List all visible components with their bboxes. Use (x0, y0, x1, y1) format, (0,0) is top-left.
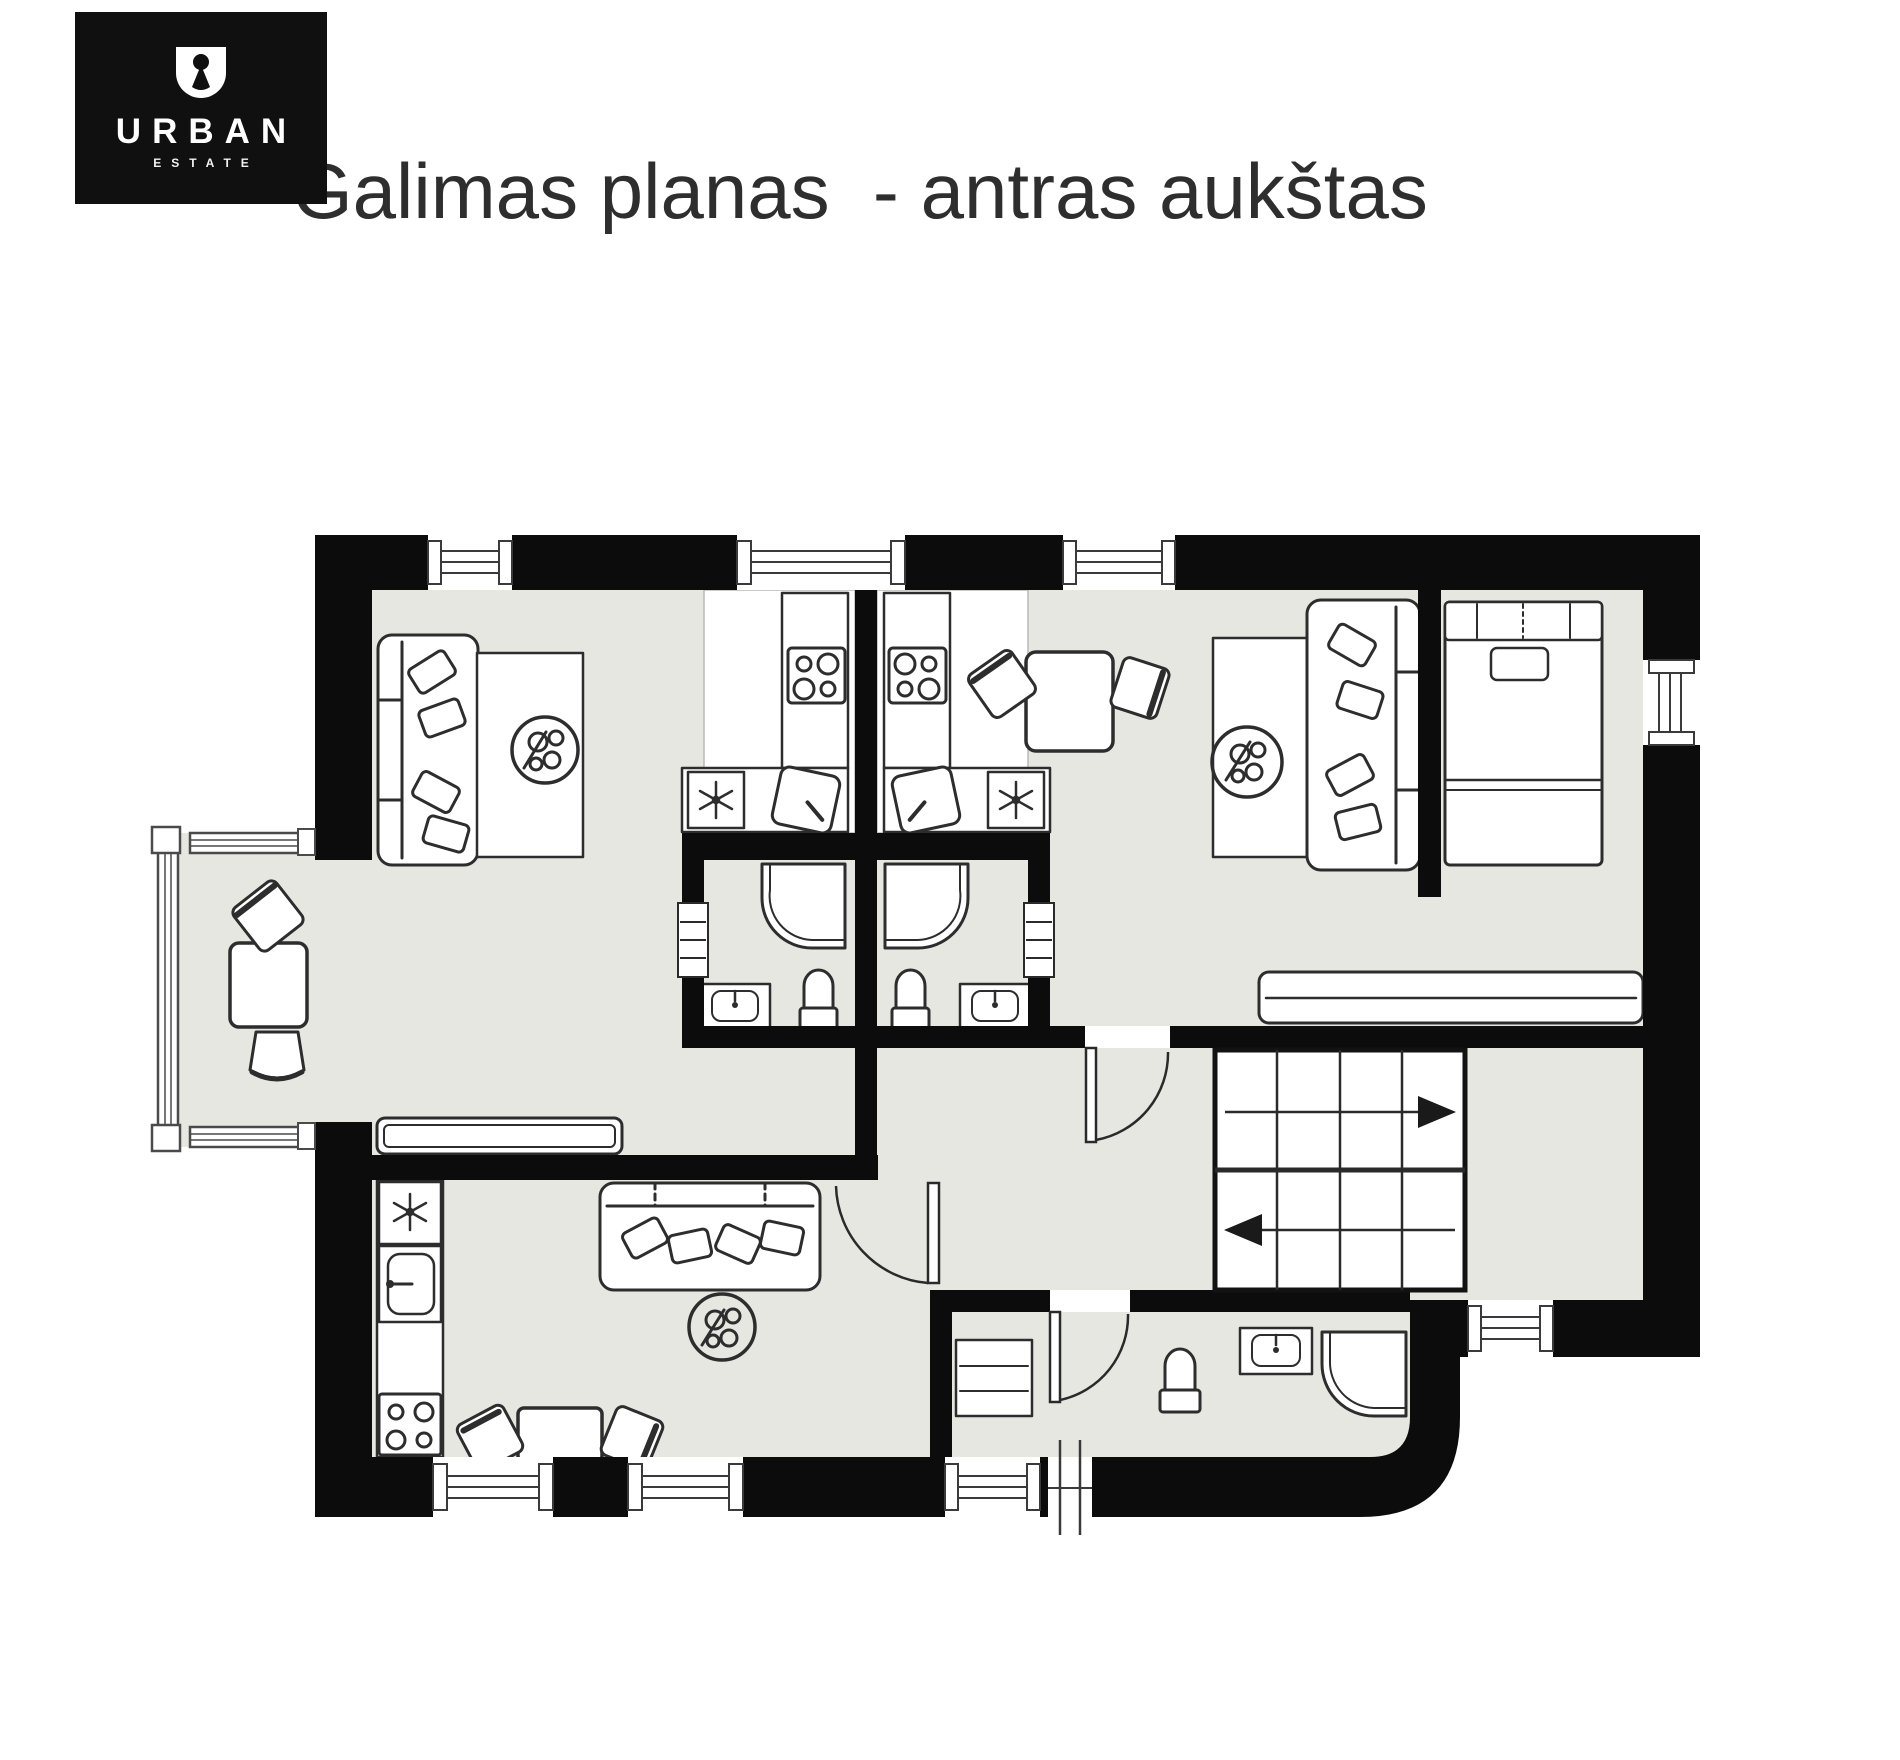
logo-brand: URBAN (105, 114, 297, 149)
sofa-icon (378, 635, 478, 865)
bathroom-2-door (1024, 903, 1054, 977)
toilet-icon (892, 970, 929, 1030)
logo-sub: ESTATE (143, 156, 259, 170)
bottom-window-3 (945, 1457, 1040, 1517)
washing-machine-icon (956, 1340, 1032, 1416)
washbasin-icon (960, 984, 1030, 1028)
bottom-window-1 (433, 1457, 553, 1517)
keyhole-u-icon (172, 47, 230, 108)
sofa-icon (1307, 600, 1420, 870)
bathroom-1-door (678, 903, 708, 977)
fridge-snowflake-icon (988, 772, 1044, 828)
kitchen-sink-icon (379, 1246, 441, 1322)
sofa-icon (600, 1183, 820, 1290)
wardrobe-icon (1259, 972, 1643, 1023)
top-window-1 (428, 535, 512, 590)
washbasin-icon (1240, 1328, 1312, 1374)
page-title: Galimas planas - antras aukštas (292, 146, 1428, 237)
kitchen-side-table-1 (771, 765, 842, 834)
stair-hall-window (1468, 1300, 1553, 1357)
stove-icon (379, 1394, 441, 1455)
bottom-window-2 (628, 1457, 743, 1517)
stove-icon (889, 648, 946, 703)
stove-icon (788, 648, 845, 703)
kitchen-side-table-2 (891, 765, 962, 834)
top-window-3 (1063, 535, 1175, 590)
fridge-snowflake-icon (688, 772, 744, 828)
toilet-icon (800, 970, 837, 1030)
balcony-table-icon (230, 943, 307, 1027)
top-window-2 (737, 535, 905, 590)
toilet-icon (1160, 1349, 1200, 1412)
fridge-snowflake-icon (379, 1182, 441, 1244)
floor-plan (0, 0, 1900, 1760)
right-window (1643, 660, 1700, 745)
sideboard-icon (377, 1118, 622, 1154)
coffee-table-icon (477, 653, 583, 857)
bed-icon (1445, 602, 1602, 865)
stairs-icon (1215, 1050, 1465, 1290)
logo: URBAN ESTATE (75, 12, 327, 204)
washbasin-icon (700, 984, 770, 1028)
desk-icon (1026, 652, 1113, 751)
coffee-table-icon (1213, 638, 1307, 857)
